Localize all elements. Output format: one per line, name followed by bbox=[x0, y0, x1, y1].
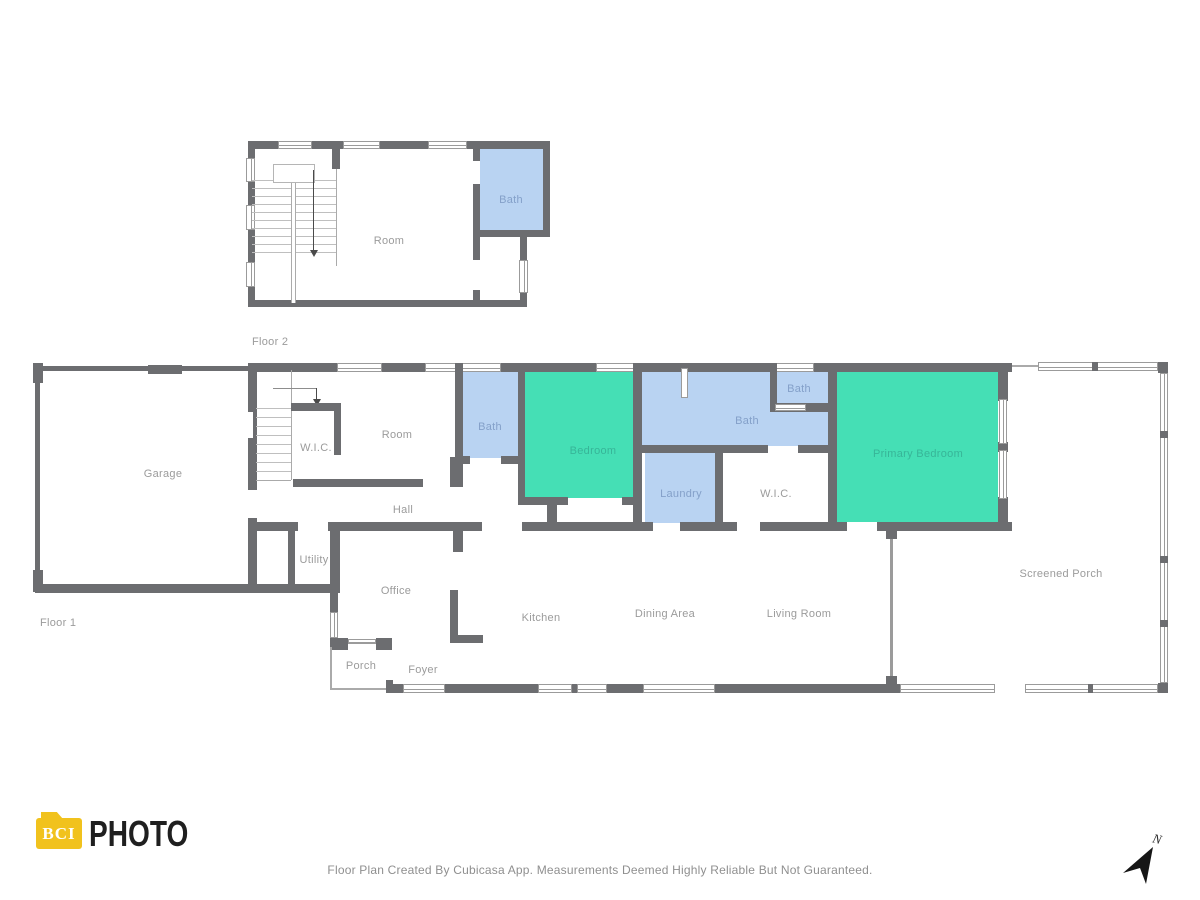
camera-icon: BCI bbox=[36, 818, 82, 849]
screen-post bbox=[1160, 556, 1168, 563]
wall bbox=[680, 522, 737, 531]
window bbox=[403, 684, 445, 693]
window bbox=[596, 363, 637, 372]
room-label-hall: Hall bbox=[393, 504, 413, 516]
wall bbox=[330, 638, 348, 650]
primary-bath-fill-2 bbox=[770, 412, 837, 446]
room-label-living-room: Living Room bbox=[767, 608, 831, 620]
window bbox=[999, 450, 1007, 499]
glass-wall bbox=[890, 539, 893, 678]
wall bbox=[522, 522, 653, 531]
wall bbox=[886, 676, 897, 693]
wall bbox=[998, 363, 1008, 401]
window bbox=[538, 684, 572, 693]
stair-rail bbox=[291, 183, 296, 303]
wall bbox=[473, 290, 480, 307]
screen-post bbox=[1092, 362, 1098, 371]
stair-stringer-line bbox=[336, 169, 337, 266]
room-label-utility: Utility bbox=[300, 554, 329, 566]
wall bbox=[1158, 362, 1168, 373]
wall bbox=[715, 684, 900, 693]
wall bbox=[473, 141, 480, 161]
window bbox=[246, 158, 255, 182]
wall bbox=[453, 522, 463, 552]
window bbox=[248, 412, 253, 438]
wall bbox=[715, 445, 723, 522]
room-label-floor2-bath: Bath bbox=[499, 194, 523, 206]
wall bbox=[828, 363, 837, 523]
room-label-porch: Porch bbox=[346, 660, 376, 672]
door-leaf bbox=[681, 368, 688, 398]
bci-photo-logo: BCI PHOTO bbox=[36, 812, 216, 849]
screen-post bbox=[1088, 684, 1093, 693]
room-label-bedroom: Bedroom bbox=[570, 445, 617, 457]
wall bbox=[35, 584, 340, 593]
wall bbox=[473, 237, 480, 260]
window bbox=[774, 363, 814, 372]
wall bbox=[1158, 683, 1168, 693]
window bbox=[343, 141, 380, 149]
window bbox=[348, 639, 376, 644]
wall bbox=[877, 522, 1012, 531]
logo-photo-text: PHOTO bbox=[89, 818, 188, 849]
wall bbox=[518, 497, 568, 505]
wall bbox=[248, 300, 527, 307]
window bbox=[330, 612, 338, 638]
wall bbox=[330, 593, 338, 612]
room-label-bath-small: Bath bbox=[787, 383, 811, 395]
wall bbox=[330, 522, 340, 593]
primary-bath-fill bbox=[642, 370, 770, 446]
wall bbox=[886, 522, 897, 539]
bedroom-fill bbox=[525, 370, 635, 498]
wall bbox=[248, 522, 298, 531]
north-label: N bbox=[1150, 830, 1164, 847]
wall bbox=[473, 184, 480, 230]
screen-post bbox=[1160, 431, 1168, 438]
staircase-treads bbox=[256, 408, 291, 480]
north-compass-icon: N bbox=[1108, 822, 1170, 897]
wall bbox=[473, 230, 550, 237]
stair-bottom-line bbox=[256, 480, 291, 481]
floor-plan-canvas: Room Bath Floor 2 bbox=[0, 0, 1200, 900]
stair-upper-flight-outline bbox=[273, 164, 315, 183]
stair-direction-line bbox=[316, 388, 317, 399]
garage-door-marker bbox=[148, 365, 182, 374]
room-label-primary-bedroom: Primary Bedroom bbox=[873, 448, 963, 460]
window bbox=[577, 684, 607, 693]
screen-wall bbox=[1160, 373, 1168, 683]
wall bbox=[455, 363, 463, 458]
floor2-bath-fill bbox=[480, 148, 543, 230]
logo-bci-text: BCI bbox=[36, 818, 82, 849]
primary-bedroom-fill bbox=[837, 369, 998, 522]
north-arrow-shape bbox=[1123, 847, 1153, 884]
window bbox=[519, 260, 528, 293]
wall bbox=[455, 456, 470, 464]
window bbox=[337, 363, 382, 372]
room-label-kitchen: Kitchen bbox=[522, 612, 561, 624]
wall bbox=[518, 363, 525, 505]
stair-direction-line bbox=[313, 170, 314, 250]
room-label-screened-porch: Screened Porch bbox=[1019, 568, 1102, 580]
window bbox=[643, 684, 715, 693]
room-label-wic-right: W.I.C. bbox=[760, 488, 792, 500]
room-label-bath-left: Bath bbox=[478, 421, 502, 433]
wall bbox=[607, 684, 643, 693]
floor2-label: Floor 2 bbox=[252, 336, 288, 348]
window bbox=[278, 141, 312, 149]
screen-wall bbox=[1038, 362, 1158, 371]
window bbox=[246, 262, 255, 287]
bath-left-fill bbox=[463, 370, 518, 458]
window bbox=[428, 141, 467, 149]
room-label-dining-area: Dining Area bbox=[635, 608, 695, 620]
stair-stringer-line bbox=[291, 370, 292, 480]
room-label-garage: Garage bbox=[144, 468, 183, 480]
wall bbox=[376, 638, 392, 650]
wall bbox=[288, 531, 295, 584]
wall bbox=[445, 684, 538, 693]
sliding-door bbox=[900, 684, 995, 693]
room-label-floor2-room: Room bbox=[374, 235, 405, 247]
wall bbox=[450, 635, 483, 643]
disclaimer-text: Floor Plan Created By Cubicasa App. Meas… bbox=[0, 863, 1200, 877]
wall bbox=[293, 479, 423, 487]
stair-down-arrow-icon bbox=[310, 250, 318, 257]
window bbox=[425, 363, 501, 372]
wall bbox=[40, 366, 248, 371]
porch-outline bbox=[330, 647, 332, 690]
room-label-bath-primary: Bath bbox=[735, 415, 759, 427]
wall bbox=[35, 368, 40, 578]
pocket-door bbox=[775, 404, 806, 411]
wall bbox=[543, 141, 550, 237]
wall bbox=[334, 403, 341, 455]
room-label-laundry: Laundry bbox=[660, 488, 702, 500]
floor1-label: Floor 1 bbox=[40, 617, 76, 629]
wall bbox=[637, 445, 768, 453]
wall bbox=[760, 522, 847, 531]
screen-post bbox=[1160, 620, 1168, 627]
room-label-room: Room bbox=[382, 429, 413, 441]
window bbox=[999, 399, 1007, 444]
room-label-foyer: Foyer bbox=[408, 664, 438, 676]
porch-outline bbox=[330, 688, 388, 690]
wall bbox=[332, 141, 340, 169]
wall bbox=[501, 456, 518, 464]
wall bbox=[386, 684, 403, 693]
porch-threshold-line bbox=[1012, 365, 1038, 367]
room-label-office: Office bbox=[381, 585, 411, 597]
room-label-wic-left: W.I.C. bbox=[300, 442, 332, 454]
wall bbox=[450, 590, 458, 637]
stair-direction-line bbox=[273, 388, 316, 389]
